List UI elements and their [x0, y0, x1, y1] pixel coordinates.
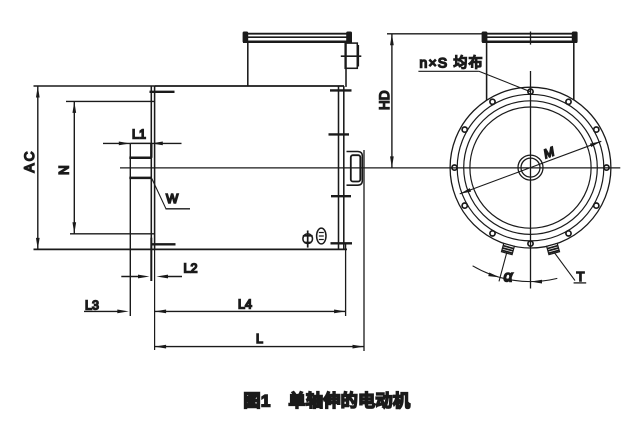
- svg-text:W: W: [166, 191, 179, 206]
- svg-text:n×S 均布: n×S 均布: [420, 55, 483, 71]
- svg-text:图1 单轴伸的电动机: 图1 单轴伸的电动机: [244, 391, 411, 411]
- svg-text:L4: L4: [238, 298, 252, 312]
- svg-text:T: T: [577, 269, 585, 284]
- svg-text:L: L: [256, 332, 263, 346]
- svg-text:HD: HD: [377, 90, 392, 110]
- svg-text:α: α: [504, 269, 514, 286]
- svg-text:L3: L3: [85, 299, 99, 313]
- svg-text:N: N: [56, 165, 71, 175]
- svg-text:AC: AC: [22, 151, 37, 172]
- svg-text:L1: L1: [132, 128, 146, 142]
- svg-text:L2: L2: [184, 262, 198, 276]
